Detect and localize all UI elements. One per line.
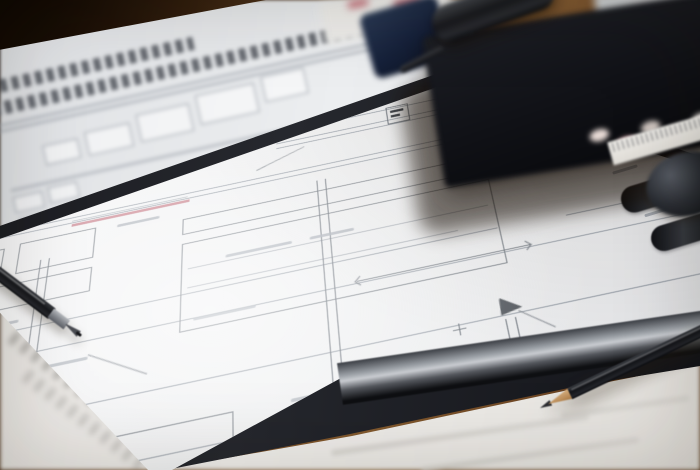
sketch-box bbox=[13, 191, 46, 213]
sketch-box bbox=[195, 83, 260, 125]
underpaper-streak bbox=[421, 437, 640, 470]
desk-scene bbox=[0, 0, 700, 470]
underpaper-streak bbox=[560, 395, 690, 419]
sketch-box bbox=[42, 138, 81, 165]
sketch-box bbox=[84, 123, 134, 156]
sketch-box bbox=[136, 103, 195, 142]
pencil-lead-tip bbox=[539, 400, 552, 411]
